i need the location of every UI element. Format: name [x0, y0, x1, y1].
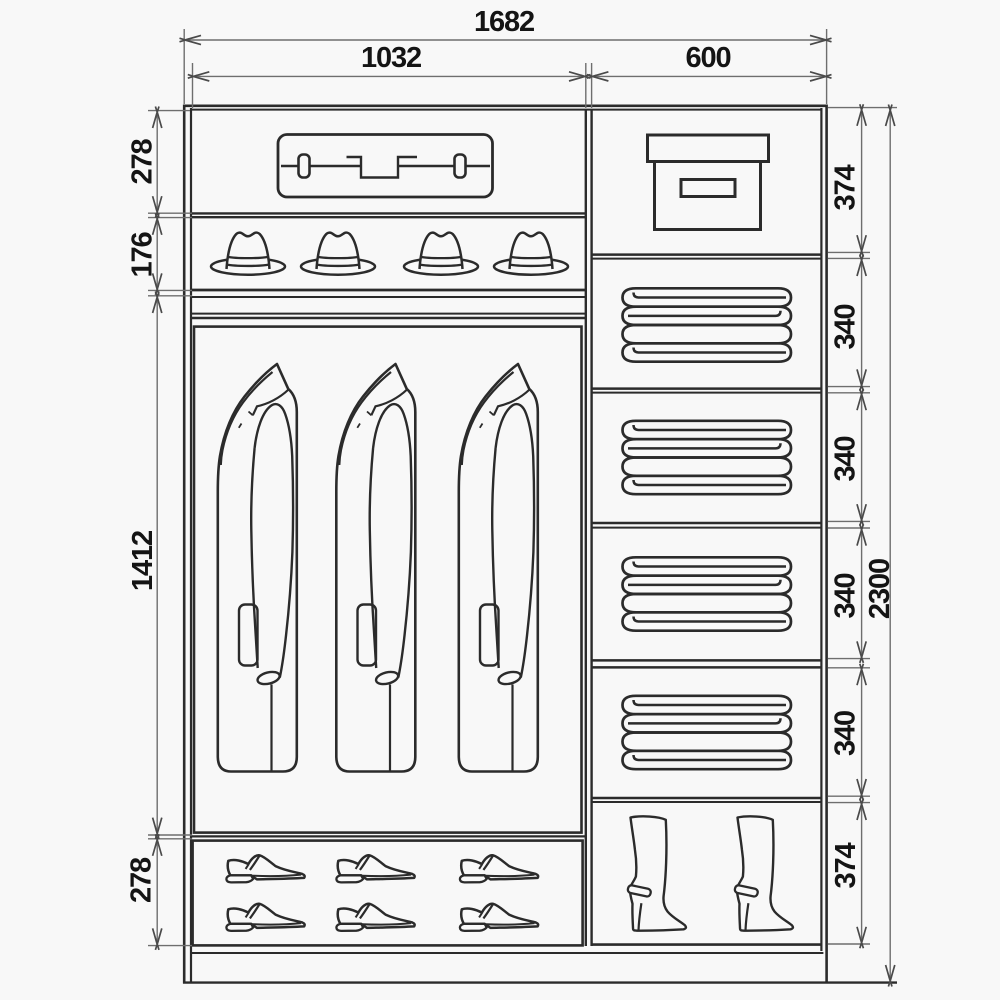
svg-text:1682: 1682 — [474, 6, 534, 38]
svg-text:374: 374 — [830, 164, 862, 210]
svg-text:340: 340 — [830, 436, 862, 481]
svg-text:1032: 1032 — [361, 42, 421, 74]
svg-text:2300: 2300 — [864, 559, 896, 619]
svg-text:340: 340 — [830, 573, 862, 618]
svg-text:374: 374 — [830, 842, 862, 888]
svg-text:340: 340 — [830, 304, 862, 349]
svg-text:340: 340 — [830, 711, 862, 756]
svg-text:278: 278 — [126, 857, 158, 903]
svg-text:278: 278 — [127, 138, 159, 184]
svg-text:1412: 1412 — [127, 531, 159, 591]
svg-text:176: 176 — [127, 231, 159, 277]
svg-text:600: 600 — [685, 42, 730, 74]
